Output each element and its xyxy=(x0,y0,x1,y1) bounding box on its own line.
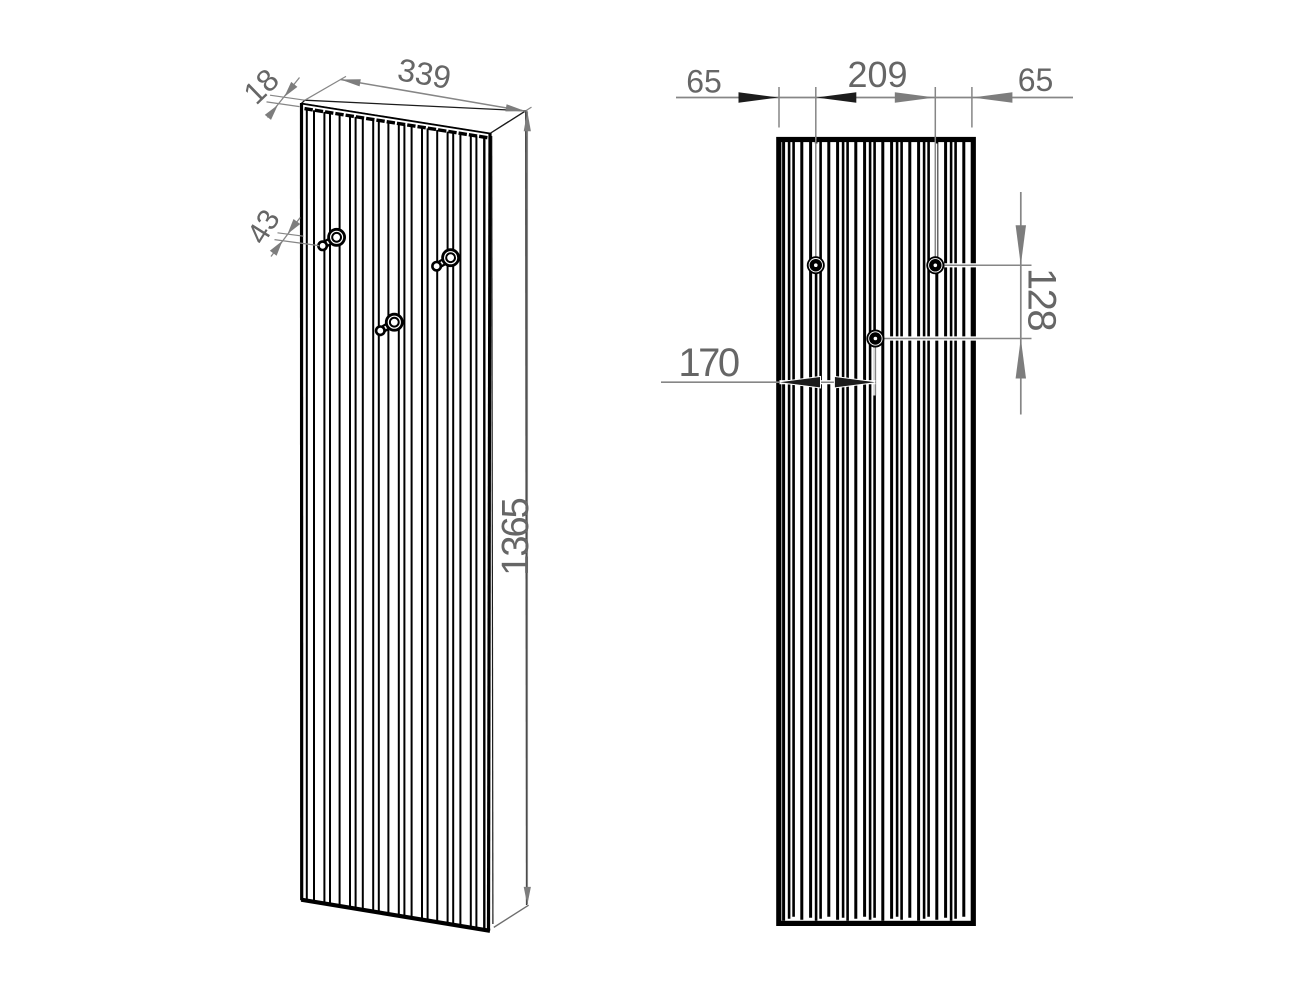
svg-text:209: 209 xyxy=(847,54,907,95)
svg-text:65: 65 xyxy=(686,64,722,100)
svg-text:170: 170 xyxy=(678,341,738,385)
svg-text:65: 65 xyxy=(1018,62,1054,98)
svg-text:339: 339 xyxy=(395,51,454,95)
svg-text:128: 128 xyxy=(1020,268,1064,330)
svg-text:1365: 1365 xyxy=(495,498,537,575)
